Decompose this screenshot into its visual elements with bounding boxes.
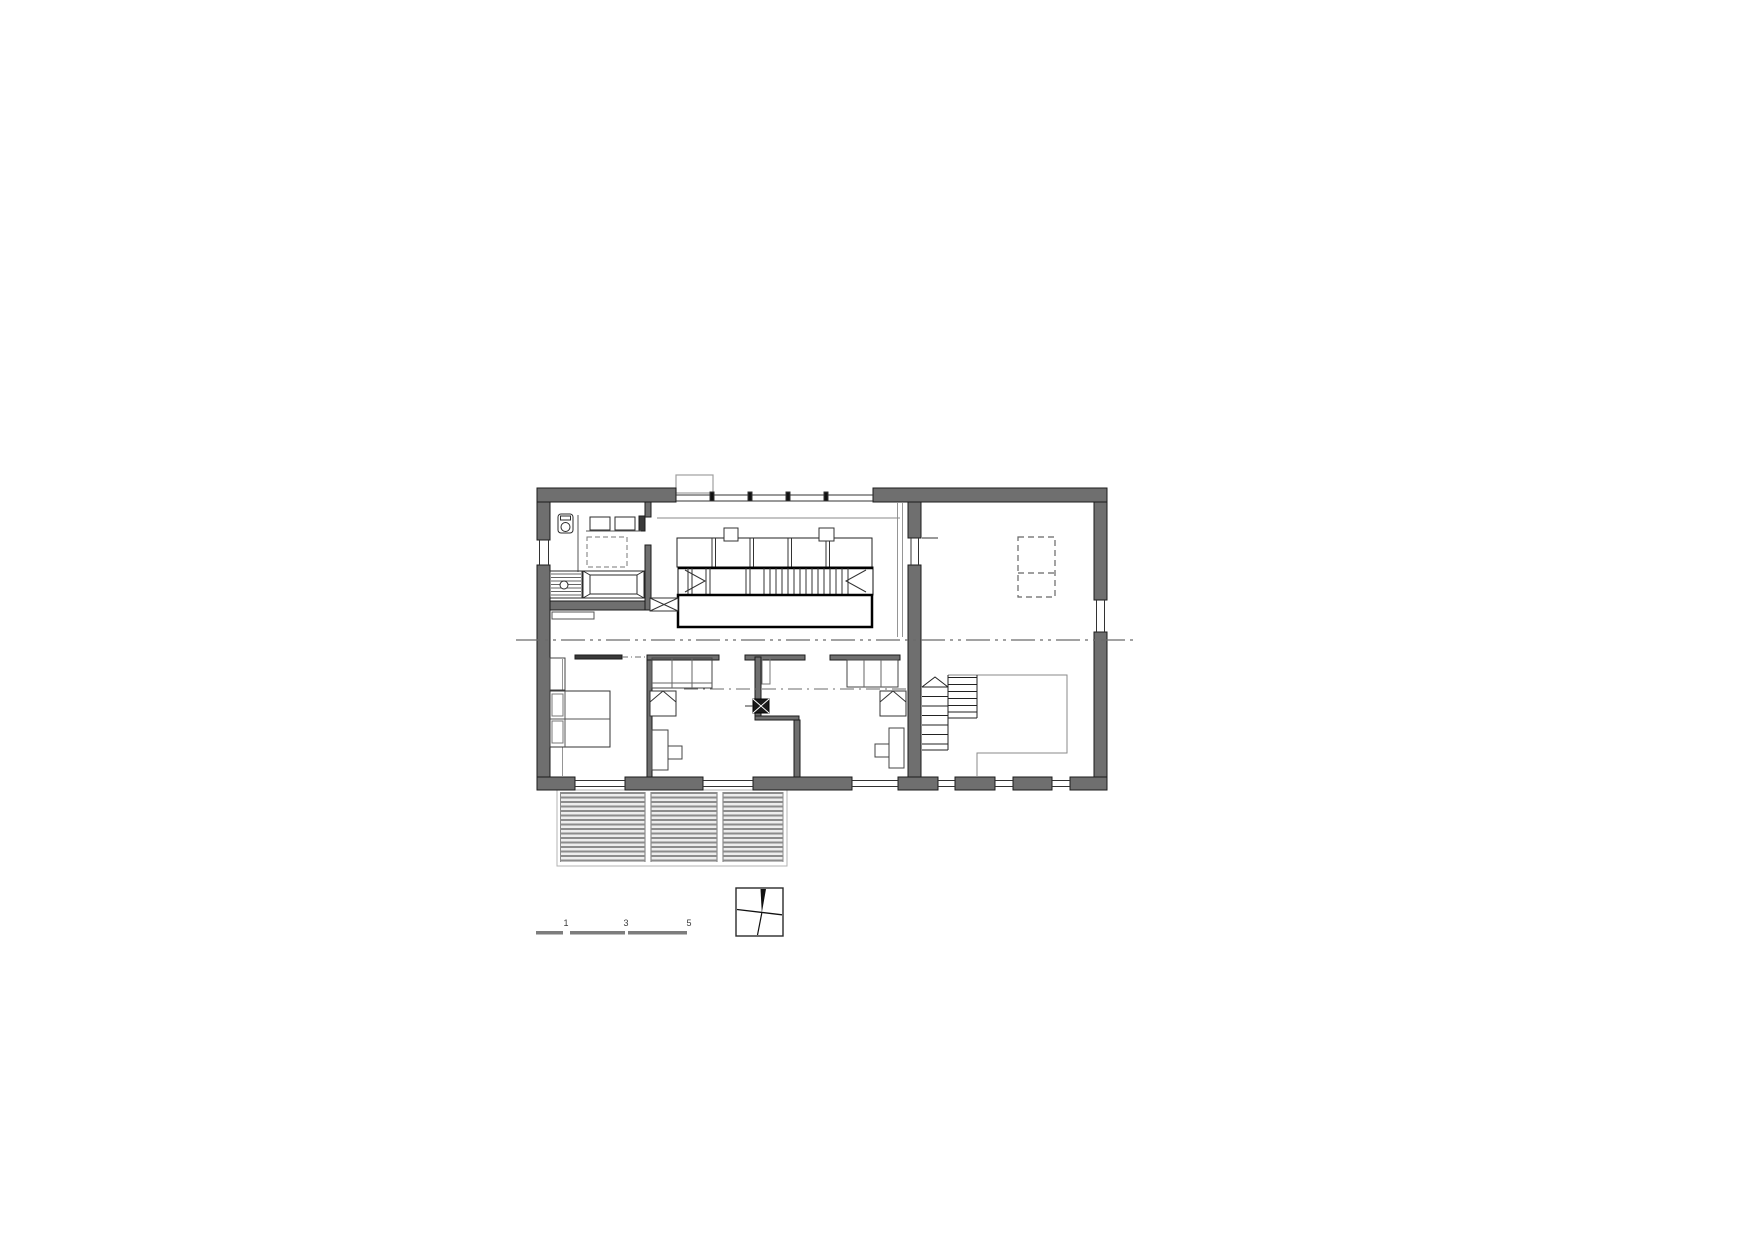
- bottom-wall-seg: [955, 777, 995, 790]
- mullion: [710, 492, 714, 501]
- top-wall-right: [873, 488, 1107, 502]
- left-wall-lower: [537, 565, 550, 790]
- door-jamb: [639, 516, 645, 531]
- washbasin: [590, 517, 610, 530]
- window-south: [938, 781, 955, 787]
- floor-void: [678, 595, 872, 627]
- bottom-wall-seg: [1013, 777, 1052, 790]
- mullion: [824, 492, 828, 501]
- bedroom-divider-wall: [647, 660, 652, 777]
- closet-dividers: [652, 658, 712, 688]
- scale-segment: [628, 931, 687, 935]
- window-south: [703, 781, 753, 787]
- living-area: [650, 502, 938, 637]
- closet-nook: [762, 658, 770, 684]
- wardrobe: [880, 691, 906, 716]
- right-wing: [922, 537, 1067, 777]
- section-lines: [516, 640, 1135, 689]
- skylight-dashed: [587, 537, 627, 567]
- entry-canopy: [676, 475, 713, 493]
- low-wall: [575, 655, 622, 659]
- bathroom-east-wall-a: [645, 502, 651, 517]
- cabinet-row: [677, 538, 872, 567]
- desk: [652, 730, 668, 770]
- bedroom-z-wall-jog: [755, 716, 799, 720]
- bottom-wall-seg: [1070, 777, 1107, 790]
- opening-dividing-wall: [911, 538, 919, 565]
- top-wall-left: [537, 488, 676, 502]
- bottom-wall-seg: [753, 777, 852, 790]
- hall-bench: [552, 612, 594, 619]
- bedroom-z-wall-b: [794, 720, 800, 777]
- mullion: [786, 492, 790, 501]
- gallery-edge-lines: [898, 502, 903, 637]
- skylight-dashed: [1018, 537, 1055, 597]
- stair-flight-lower: [922, 687, 948, 750]
- chair: [668, 746, 682, 759]
- left-wall-upper: [537, 502, 550, 540]
- stair-arrow: [922, 677, 948, 687]
- mullion: [748, 492, 752, 501]
- bedroom-wall: [830, 655, 900, 660]
- scale-bar: [536, 931, 687, 935]
- dividing-wall-upper: [908, 502, 921, 538]
- glazing-band-north: [676, 495, 873, 501]
- bedroom-wall: [745, 655, 805, 660]
- scale-label-5: 5: [682, 918, 696, 929]
- stair-flight-upper: [948, 678, 977, 719]
- bedrooms: [550, 658, 906, 776]
- scale-segment: [570, 931, 625, 935]
- chair: [875, 744, 889, 757]
- scale-segment: [536, 931, 563, 935]
- cabinet-box: [724, 528, 738, 541]
- toilet-bowl: [561, 523, 570, 532]
- closet-dividers: [864, 660, 881, 687]
- toilet-tank: [561, 516, 571, 520]
- desk: [889, 728, 904, 768]
- bottom-wall-seg: [898, 777, 938, 790]
- window-south: [852, 781, 898, 787]
- closet: [847, 660, 898, 687]
- shower-drain: [560, 581, 568, 589]
- floor-plan-drawing: [0, 0, 1755, 1240]
- scale-label-3: 3: [619, 918, 633, 929]
- scale-label-1: 1: [559, 918, 573, 929]
- washbasin: [615, 517, 635, 530]
- bathroom-south-wall: [550, 601, 645, 610]
- wardrobe: [650, 691, 676, 716]
- window-south: [1052, 781, 1070, 787]
- right-wall-upper: [1094, 502, 1107, 600]
- cabinet-box: [819, 528, 834, 541]
- bottom-wall-seg: [537, 777, 575, 790]
- terrace-border: [557, 790, 787, 866]
- bottom-wall-seg: [625, 777, 703, 790]
- window-west: [540, 540, 549, 565]
- right-wall-lower: [1094, 632, 1107, 790]
- dividing-wall-lower: [908, 565, 921, 777]
- north-arrow: [736, 888, 783, 936]
- window-south: [575, 781, 625, 787]
- bathtub-inner: [590, 575, 637, 594]
- window-south: [995, 781, 1013, 787]
- floor-edge-outline: [948, 675, 1067, 777]
- window-east: [1097, 600, 1105, 632]
